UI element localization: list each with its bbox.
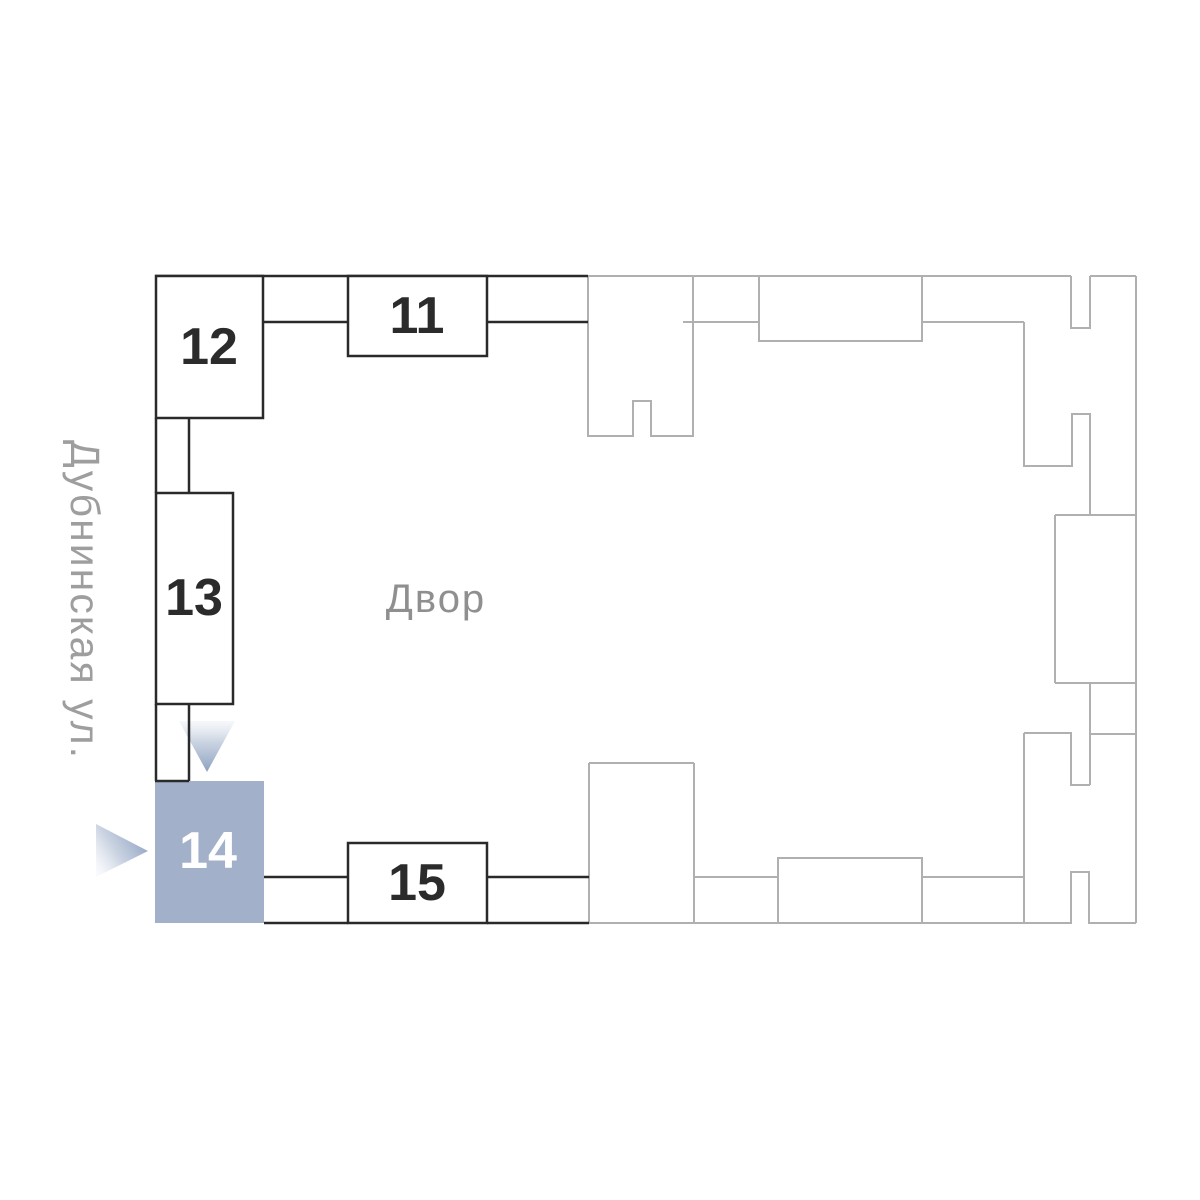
street-label: Дубнинская ул. <box>62 440 108 760</box>
building-15-label: 15 <box>388 854 446 912</box>
building-12-label: 12 <box>180 318 238 376</box>
selected-building-arrow-down-icon <box>179 721 235 772</box>
neighbor-buildings-outline <box>588 276 1136 923</box>
site-plan-canvas: 11 12 13 14 15 Двор Дубнинская ул. <box>0 0 1200 1200</box>
building-11-label: 11 <box>390 287 445 345</box>
selected-building-arrow-right-icon <box>96 824 148 877</box>
courtyard-label: Двор <box>386 577 486 621</box>
building-14-label: 14 <box>179 822 237 880</box>
building-13-label: 13 <box>165 569 223 627</box>
site-plan-svg: 11 12 13 14 15 Двор Дубнинская ул. <box>0 0 1200 1200</box>
